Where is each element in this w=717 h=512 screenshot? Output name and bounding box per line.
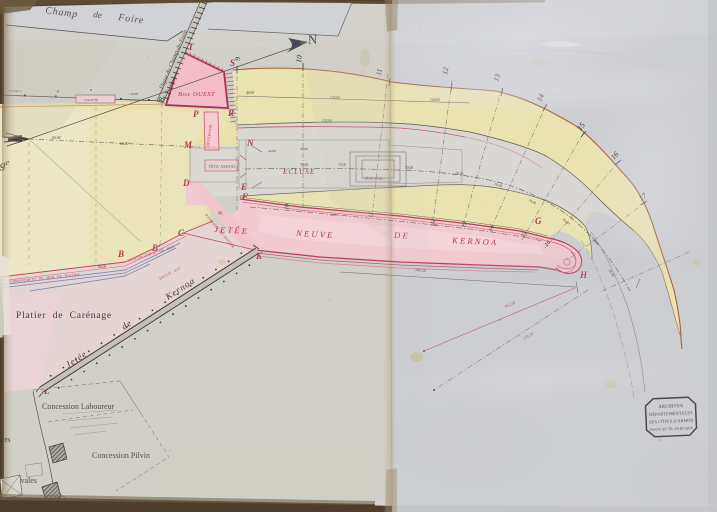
svg-text:70.00: 70.00	[300, 163, 308, 167]
svg-text:58.00: 58.00	[300, 147, 308, 151]
svg-text:10: 10	[284, 204, 291, 211]
svg-text:a: a	[90, 87, 92, 92]
svg-text:Concession Laboureur: Concession Laboureur	[42, 402, 115, 411]
svg-text:65.00: 65.00	[52, 136, 61, 140]
svg-text:N: N	[246, 138, 254, 148]
svg-text:G: G	[535, 216, 542, 226]
svg-text:86.00: 86.00	[98, 265, 106, 269]
svg-text:ECLUSE: ECLUSE	[282, 168, 315, 176]
svg-text:D: D	[182, 178, 190, 188]
svg-text:E: E	[240, 182, 247, 192]
svg-text:S: S	[230, 58, 235, 68]
svg-text:Platier de Carénage: Platier de Carénage	[16, 311, 112, 321]
svg-text:B: B	[117, 249, 124, 259]
svg-text:R: R	[227, 108, 234, 118]
svg-text:T: T	[188, 42, 194, 52]
svg-text:TÊTE AMONT: TÊTE AMONT	[208, 164, 237, 169]
svg-text:P: P	[193, 109, 199, 119]
svg-text:Concession Pilvin: Concession Pilvin	[92, 451, 150, 460]
svg-text:44.00: 44.00	[268, 149, 276, 153]
svg-text:M: M	[183, 140, 193, 150]
svg-text:NEUVE: NEUVE	[295, 228, 335, 240]
svg-text:64.00: 64.00	[120, 142, 129, 146]
svg-text:+10.85: +10.85	[128, 92, 138, 96]
svg-text:44.00: 44.00	[246, 91, 254, 95]
svg-text:50.00: 50.00	[430, 223, 438, 227]
svg-text:50.00: 50.00	[330, 213, 338, 217]
svg-text:Cale N°10: Cale N°10	[84, 98, 99, 102]
svg-text:F: F	[241, 192, 248, 202]
svg-text:10: 10	[294, 54, 304, 63]
svg-text:de: de	[93, 9, 103, 20]
svg-text:BSSE OUEST: BSSE OUEST	[178, 91, 215, 98]
